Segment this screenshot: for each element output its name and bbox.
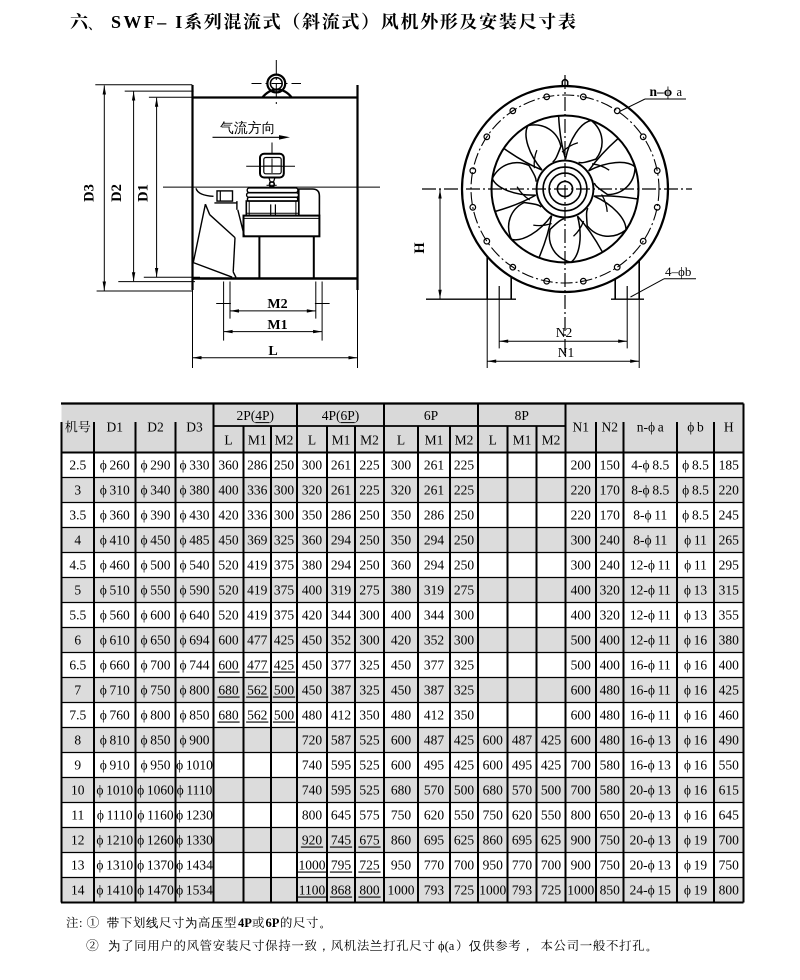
svg-text:300: 300	[391, 458, 412, 473]
svg-text:294: 294	[424, 533, 445, 548]
svg-text:695: 695	[512, 833, 533, 848]
svg-text:294: 294	[331, 533, 352, 548]
svg-text:580: 580	[600, 758, 621, 773]
svg-text:800: 800	[359, 883, 380, 898]
svg-text:300: 300	[454, 633, 475, 648]
svg-text:2.5: 2.5	[69, 458, 86, 473]
svg-text:600: 600	[483, 758, 504, 773]
svg-text:16-ϕ 13: 16-ϕ 13	[630, 733, 672, 748]
svg-text:419: 419	[247, 558, 268, 573]
svg-text:ϕ 16: ϕ 16	[684, 633, 708, 648]
svg-text:ϕ 1370: ϕ 1370	[137, 858, 174, 873]
svg-text:ϕ 430: ϕ 430	[179, 508, 209, 523]
svg-text:H: H	[412, 242, 428, 254]
svg-text:M2: M2	[275, 433, 294, 448]
svg-text:600: 600	[391, 758, 412, 773]
svg-text:M1: M1	[332, 433, 351, 448]
svg-text:12: 12	[71, 833, 85, 848]
svg-text:300: 300	[571, 558, 592, 573]
svg-text:600: 600	[218, 633, 239, 648]
svg-text:400: 400	[391, 608, 412, 623]
svg-text:1000: 1000	[567, 883, 594, 898]
svg-text:ϕ 8.5: ϕ 8.5	[682, 458, 709, 473]
svg-text:16-ϕ 11: 16-ϕ 11	[630, 708, 671, 723]
svg-text:M2: M2	[360, 433, 379, 448]
svg-text:680: 680	[218, 708, 239, 723]
svg-text:20-ϕ 13: 20-ϕ 13	[630, 783, 672, 798]
svg-text:n-ϕ a: n-ϕ a	[637, 420, 664, 435]
svg-text:24-ϕ 15: 24-ϕ 15	[630, 883, 672, 898]
svg-text:170: 170	[600, 483, 621, 498]
svg-text:336: 336	[247, 483, 268, 498]
svg-text:600: 600	[483, 733, 504, 748]
svg-text:500: 500	[274, 683, 295, 698]
svg-text:M2: M2	[542, 433, 561, 448]
svg-text:ϕ 710: ϕ 710	[100, 683, 130, 698]
svg-text:I: I	[175, 12, 182, 32]
svg-text:n–ϕ: n–ϕ	[650, 84, 673, 99]
svg-text:250: 250	[454, 508, 475, 523]
svg-text:425: 425	[541, 758, 562, 773]
svg-text:575: 575	[359, 808, 380, 823]
svg-text:620: 620	[424, 808, 445, 823]
svg-text:950: 950	[483, 858, 504, 873]
svg-text:400: 400	[600, 633, 621, 648]
svg-text:300: 300	[359, 633, 380, 648]
svg-text:20-ϕ 13: 20-ϕ 13	[630, 858, 672, 873]
svg-text:13: 13	[71, 858, 85, 873]
svg-text:868: 868	[331, 883, 352, 898]
svg-text:600: 600	[391, 733, 412, 748]
svg-text:352: 352	[331, 633, 351, 648]
svg-text:400: 400	[600, 658, 621, 673]
svg-text:250: 250	[274, 458, 295, 473]
svg-text:325: 325	[454, 658, 475, 673]
svg-text:1000: 1000	[479, 883, 506, 898]
svg-text:14: 14	[71, 883, 85, 898]
svg-text:795: 795	[331, 858, 352, 873]
svg-text:ϕ 1330: ϕ 1330	[176, 833, 213, 848]
svg-text:750: 750	[483, 808, 504, 823]
svg-text:680: 680	[483, 783, 504, 798]
svg-text:20-ϕ 13: 20-ϕ 13	[630, 833, 672, 848]
svg-text:800: 800	[302, 808, 323, 823]
svg-text:295: 295	[719, 558, 740, 573]
svg-text:495: 495	[512, 758, 533, 773]
svg-text:16-ϕ 11: 16-ϕ 11	[630, 683, 671, 698]
svg-text:750: 750	[719, 858, 740, 873]
svg-text:245: 245	[719, 508, 740, 523]
svg-text:250: 250	[454, 558, 475, 573]
svg-text:460: 460	[719, 708, 740, 723]
svg-text:4-ϕ 8.5: 4-ϕ 8.5	[631, 458, 669, 473]
svg-text:325: 325	[454, 683, 475, 698]
svg-text:ϕ 1230: ϕ 1230	[176, 808, 213, 823]
svg-text:860: 860	[391, 833, 412, 848]
svg-text:495: 495	[424, 758, 445, 773]
svg-text:400: 400	[302, 583, 323, 598]
svg-text:580: 580	[600, 783, 621, 798]
svg-text:695: 695	[424, 833, 445, 848]
svg-text:600: 600	[571, 708, 592, 723]
svg-text:ϕ 8.5: ϕ 8.5	[682, 483, 709, 498]
svg-text:595: 595	[331, 783, 352, 798]
svg-text:425: 425	[454, 733, 475, 748]
svg-text:7.5: 7.5	[69, 708, 86, 723]
svg-text:480: 480	[600, 733, 621, 748]
svg-text:ϕ 1010: ϕ 1010	[96, 783, 133, 798]
svg-text:L: L	[489, 433, 497, 448]
svg-text:419: 419	[247, 608, 268, 623]
svg-text:ϕ 850: ϕ 850	[140, 733, 170, 748]
svg-text:375: 375	[274, 558, 295, 573]
svg-text:344: 344	[331, 608, 352, 623]
svg-text:920: 920	[302, 833, 323, 848]
svg-text:900: 900	[571, 858, 592, 873]
svg-text:725: 725	[359, 858, 380, 873]
svg-text:ϕ 16: ϕ 16	[684, 733, 708, 748]
svg-text:ϕ 16: ϕ 16	[684, 758, 708, 773]
svg-text:595: 595	[331, 758, 352, 773]
svg-text:D3: D3	[82, 184, 98, 202]
svg-text:261: 261	[424, 458, 444, 473]
svg-text:625: 625	[541, 833, 562, 848]
svg-text:350: 350	[454, 708, 475, 723]
svg-text:725: 725	[454, 883, 475, 898]
svg-text:ϕ 13: ϕ 13	[684, 608, 708, 623]
svg-text:860: 860	[483, 833, 504, 848]
svg-text:9: 9	[74, 758, 81, 773]
svg-text:500: 500	[454, 783, 475, 798]
svg-text:2P(4P): 2P(4P)	[236, 408, 274, 423]
svg-text:D1: D1	[107, 420, 124, 435]
svg-text:600: 600	[571, 683, 592, 698]
svg-text:700: 700	[541, 858, 562, 873]
svg-text:4.5: 4.5	[69, 558, 86, 573]
svg-text:8-ϕ 11: 8-ϕ 11	[633, 533, 667, 548]
svg-text:7: 7	[74, 683, 81, 698]
svg-text:D1: D1	[136, 184, 152, 202]
svg-text:ϕ 16: ϕ 16	[684, 683, 708, 698]
svg-text:294: 294	[424, 558, 445, 573]
svg-text:ϕ 19: ϕ 19	[684, 858, 708, 873]
svg-text:625: 625	[454, 833, 475, 848]
svg-text:N1: N1	[558, 345, 575, 360]
svg-text:ϕ 485: ϕ 485	[179, 533, 209, 548]
svg-text:ϕ 410: ϕ 410	[100, 533, 130, 548]
svg-text:ϕ 810: ϕ 810	[100, 733, 130, 748]
svg-text:L: L	[308, 433, 316, 448]
svg-text:ϕ 760: ϕ 760	[100, 708, 130, 723]
svg-text:ϕ 560: ϕ 560	[100, 608, 130, 623]
svg-text:ϕ 640: ϕ 640	[179, 608, 209, 623]
svg-text:380: 380	[391, 583, 412, 598]
svg-text:225: 225	[359, 483, 380, 498]
svg-text:480: 480	[391, 708, 412, 723]
svg-text:477: 477	[247, 658, 268, 673]
svg-text:6P: 6P	[266, 916, 280, 930]
svg-text:350: 350	[359, 708, 380, 723]
svg-text:ϕ 11: ϕ 11	[684, 558, 707, 573]
svg-text:300: 300	[571, 533, 592, 548]
svg-text:344: 344	[424, 608, 445, 623]
svg-text:400: 400	[719, 658, 740, 673]
svg-text:250: 250	[359, 508, 380, 523]
svg-text:12-ϕ 11: 12-ϕ 11	[630, 583, 671, 598]
svg-text:375: 375	[274, 608, 295, 623]
svg-text:480: 480	[600, 683, 621, 698]
svg-text:ϕ 510: ϕ 510	[100, 583, 130, 598]
svg-text:M1: M1	[425, 433, 444, 448]
svg-text:500: 500	[571, 633, 592, 648]
svg-text:N2: N2	[602, 420, 619, 435]
svg-text:425: 425	[541, 733, 562, 748]
svg-text:D2: D2	[109, 184, 125, 202]
svg-text:700: 700	[571, 783, 592, 798]
svg-text:275: 275	[359, 583, 380, 598]
svg-text:ϕ 460: ϕ 460	[100, 558, 130, 573]
svg-text:ϕ 19: ϕ 19	[684, 883, 708, 898]
svg-text:ϕ b: ϕ b	[687, 420, 704, 435]
svg-text:6: 6	[74, 633, 81, 648]
svg-text:ϕ 744: ϕ 744	[179, 658, 209, 673]
svg-text:562: 562	[247, 708, 267, 723]
svg-text:ϕ 19: ϕ 19	[684, 833, 708, 848]
svg-text:450: 450	[302, 683, 323, 698]
svg-text:4P: 4P	[238, 916, 252, 930]
svg-text:525: 525	[359, 758, 380, 773]
svg-text:286: 286	[247, 458, 268, 473]
svg-text:645: 645	[719, 808, 740, 823]
svg-text:12-ϕ 11: 12-ϕ 11	[630, 633, 671, 648]
svg-text:400: 400	[218, 483, 239, 498]
svg-text:261: 261	[331, 483, 351, 498]
svg-text:550: 550	[454, 808, 475, 823]
svg-text:ϕ 1110: ϕ 1110	[97, 808, 133, 823]
svg-text:8-ϕ 11: 8-ϕ 11	[633, 508, 667, 523]
svg-text:600: 600	[571, 733, 592, 748]
svg-text:400: 400	[571, 608, 592, 623]
svg-text:412: 412	[331, 708, 351, 723]
svg-text:D3: D3	[186, 420, 203, 435]
svg-text:ϕ 610: ϕ 610	[100, 633, 130, 648]
svg-text:477: 477	[247, 633, 268, 648]
svg-text:ϕ 1260: ϕ 1260	[137, 833, 174, 848]
svg-text:325: 325	[359, 683, 380, 698]
svg-text:ϕ 1534: ϕ 1534	[176, 883, 213, 898]
svg-text:ϕ 550: ϕ 550	[140, 583, 170, 598]
svg-text:800: 800	[719, 883, 740, 898]
svg-text:ϕ 910: ϕ 910	[100, 758, 130, 773]
svg-text:3.5: 3.5	[69, 508, 86, 523]
svg-text:315: 315	[719, 583, 740, 598]
svg-text:725: 725	[541, 883, 562, 898]
svg-text:ϕ 540: ϕ 540	[179, 558, 209, 573]
svg-text:450: 450	[391, 658, 412, 673]
svg-text:ϕ 590: ϕ 590	[179, 583, 209, 598]
svg-text:770: 770	[424, 858, 445, 873]
svg-text:D2: D2	[147, 420, 164, 435]
svg-text:L: L	[397, 433, 405, 448]
svg-text:420: 420	[302, 608, 323, 623]
svg-text:380: 380	[302, 558, 323, 573]
svg-text::: :	[79, 916, 82, 930]
svg-text:ϕ 850: ϕ 850	[179, 708, 209, 723]
svg-text:300: 300	[359, 608, 380, 623]
svg-text:570: 570	[424, 783, 445, 798]
svg-text:425: 425	[454, 758, 475, 773]
svg-text:286: 286	[331, 508, 352, 523]
svg-text:387: 387	[331, 683, 352, 698]
svg-text:ϕ 360: ϕ 360	[100, 508, 130, 523]
svg-text:387: 387	[424, 683, 445, 698]
svg-text:520: 520	[218, 558, 239, 573]
svg-text:ϕ 600: ϕ 600	[140, 608, 170, 623]
svg-text:ϕ 340: ϕ 340	[140, 483, 170, 498]
svg-text:500: 500	[274, 708, 295, 723]
svg-text:ϕ 16: ϕ 16	[684, 783, 708, 798]
svg-text:420: 420	[391, 633, 412, 648]
svg-text:350: 350	[391, 533, 412, 548]
svg-text:185: 185	[719, 458, 740, 473]
svg-text:M1: M1	[513, 433, 532, 448]
svg-text:220: 220	[571, 508, 592, 523]
svg-text:450: 450	[302, 633, 323, 648]
svg-text:ϕ 1210: ϕ 1210	[96, 833, 133, 848]
svg-text:ϕ 1110: ϕ 1110	[177, 783, 213, 798]
svg-text:850: 850	[600, 883, 621, 898]
svg-text:ϕ(a: ϕ(a	[438, 939, 455, 953]
svg-text:ϕ 1470: ϕ 1470	[137, 883, 174, 898]
svg-text:480: 480	[600, 708, 621, 723]
svg-text:319: 319	[331, 583, 352, 598]
svg-text:ϕ 390: ϕ 390	[140, 508, 170, 523]
svg-text:350: 350	[391, 508, 412, 523]
svg-text:355: 355	[719, 608, 740, 623]
svg-text:M1: M1	[267, 318, 287, 333]
svg-text:375: 375	[274, 583, 295, 598]
svg-text:320: 320	[600, 608, 621, 623]
svg-text:425: 425	[274, 633, 295, 648]
svg-text:500: 500	[571, 658, 592, 673]
svg-text:520: 520	[218, 608, 239, 623]
svg-text:587: 587	[331, 733, 352, 748]
svg-text:320: 320	[600, 583, 621, 598]
svg-text:377: 377	[424, 658, 445, 673]
svg-text:ϕ 1010: ϕ 1010	[176, 758, 213, 773]
svg-text:680: 680	[218, 683, 239, 698]
svg-text:750: 750	[600, 858, 621, 873]
svg-text:5.5: 5.5	[69, 608, 86, 623]
svg-text:ϕ 700: ϕ 700	[140, 658, 170, 673]
svg-text:350: 350	[302, 508, 323, 523]
svg-text:600: 600	[218, 658, 239, 673]
svg-text:650: 650	[600, 808, 621, 823]
svg-text:1000: 1000	[299, 858, 326, 873]
svg-text:4P(6P): 4P(6P)	[322, 408, 360, 423]
svg-text:8: 8	[74, 733, 81, 748]
svg-text:425: 425	[274, 658, 295, 673]
svg-text:745: 745	[331, 833, 352, 848]
svg-text:793: 793	[512, 883, 533, 898]
svg-text:300: 300	[454, 608, 475, 623]
svg-text:320: 320	[391, 483, 412, 498]
svg-text:220: 220	[719, 483, 740, 498]
svg-text:10: 10	[71, 783, 85, 798]
svg-text:ϕ 750: ϕ 750	[140, 683, 170, 698]
svg-text:ϕ 450: ϕ 450	[140, 533, 170, 548]
svg-text:480: 480	[302, 708, 323, 723]
svg-text:ϕ 500: ϕ 500	[140, 558, 170, 573]
svg-text:ϕ 13: ϕ 13	[684, 583, 708, 598]
svg-text:6.5: 6.5	[69, 658, 86, 673]
svg-text:360: 360	[391, 558, 412, 573]
svg-text:ϕ 660: ϕ 660	[100, 658, 130, 673]
svg-text:240: 240	[600, 558, 621, 573]
svg-text:ϕ 290: ϕ 290	[140, 458, 170, 473]
svg-text:ϕ 1160: ϕ 1160	[137, 808, 174, 823]
svg-text:12-ϕ 11: 12-ϕ 11	[630, 558, 671, 573]
svg-text:ϕ 380: ϕ 380	[179, 483, 209, 498]
svg-text:400: 400	[571, 583, 592, 598]
svg-text:a: a	[677, 85, 683, 99]
svg-text:225: 225	[359, 458, 380, 473]
svg-text:ϕ 16: ϕ 16	[684, 708, 708, 723]
svg-text:490: 490	[719, 733, 740, 748]
svg-text:ϕ 900: ϕ 900	[179, 733, 209, 748]
svg-text:562: 562	[247, 683, 267, 698]
svg-text:240: 240	[600, 533, 621, 548]
svg-text:225: 225	[454, 458, 475, 473]
svg-text:286: 286	[424, 508, 445, 523]
svg-text:261: 261	[424, 483, 444, 498]
svg-text:680: 680	[391, 783, 412, 798]
svg-text:L: L	[268, 344, 277, 359]
svg-text:700: 700	[454, 858, 475, 873]
svg-text:6P: 6P	[424, 408, 438, 423]
svg-text:ϕ 1434: ϕ 1434	[176, 858, 213, 873]
svg-text:700: 700	[571, 758, 592, 773]
svg-text:ϕ 310: ϕ 310	[100, 483, 130, 498]
svg-text:325: 325	[359, 658, 380, 673]
svg-text:8-ϕ 8.5: 8-ϕ 8.5	[631, 483, 669, 498]
svg-text:ϕ 8.5: ϕ 8.5	[682, 508, 709, 523]
svg-text:300: 300	[274, 483, 295, 498]
svg-text:M2: M2	[267, 297, 287, 312]
svg-text:ϕ 330: ϕ 330	[179, 458, 209, 473]
svg-text:950: 950	[391, 858, 412, 873]
svg-text:5: 5	[74, 583, 81, 598]
svg-text:275: 275	[454, 583, 475, 598]
svg-text:M2: M2	[455, 433, 474, 448]
svg-text:200: 200	[571, 458, 592, 473]
svg-text:N1: N1	[573, 420, 590, 435]
svg-text:325: 325	[274, 533, 295, 548]
svg-text:740: 740	[302, 758, 323, 773]
svg-text:487: 487	[512, 733, 533, 748]
svg-text:L: L	[224, 433, 232, 448]
svg-text:1100: 1100	[299, 883, 326, 898]
svg-text:294: 294	[331, 558, 352, 573]
svg-text:800: 800	[571, 808, 592, 823]
svg-text:ϕ 1310: ϕ 1310	[96, 858, 133, 873]
svg-text:487: 487	[424, 733, 445, 748]
svg-text:300: 300	[274, 508, 295, 523]
svg-text:170: 170	[600, 508, 621, 523]
svg-text:360: 360	[302, 533, 323, 548]
svg-text:620: 620	[512, 808, 533, 823]
svg-text:377: 377	[331, 658, 352, 673]
